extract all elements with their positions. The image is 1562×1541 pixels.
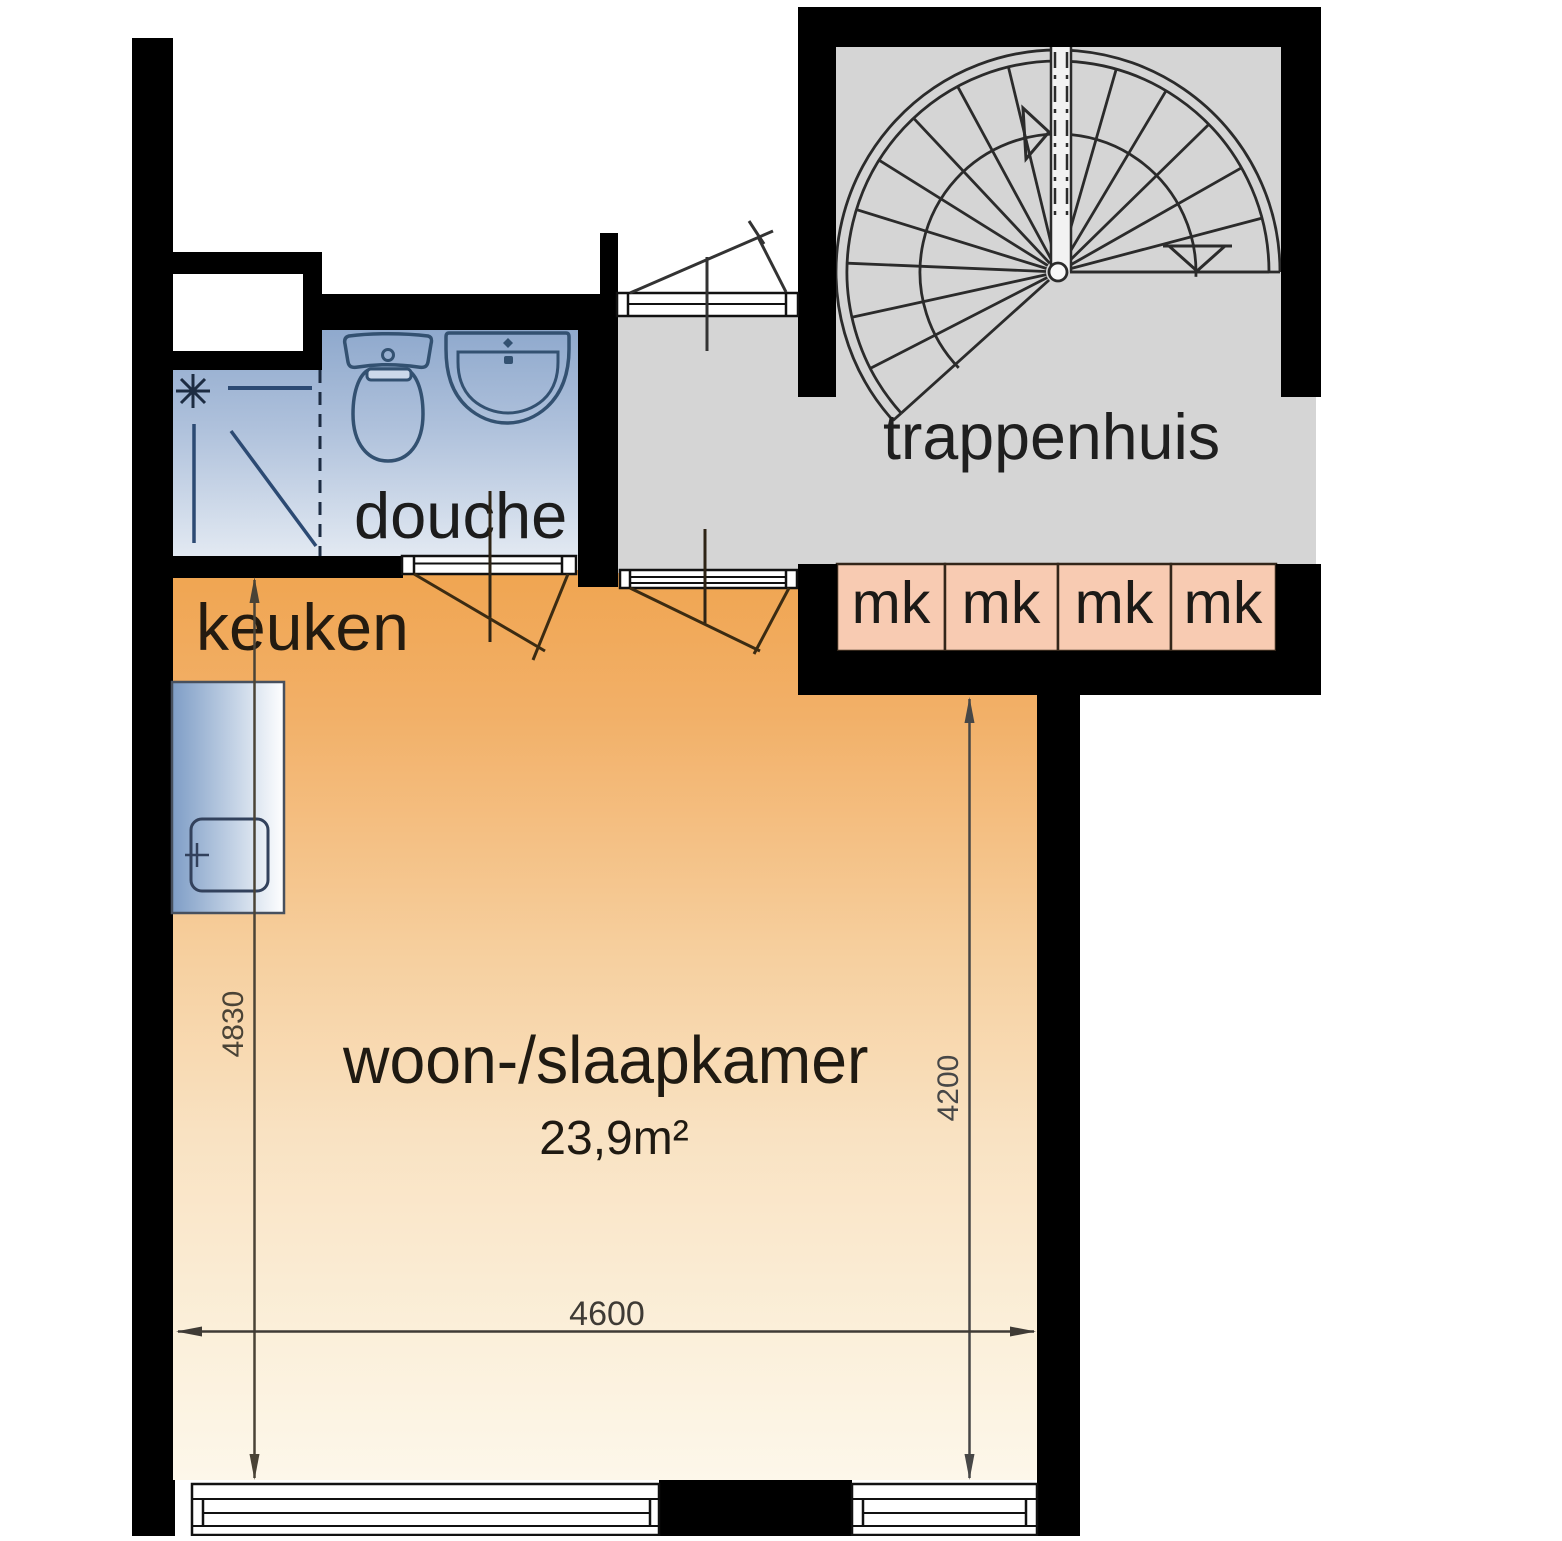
svg-text:mk: mk bbox=[962, 570, 1041, 636]
svg-text:4830: 4830 bbox=[217, 991, 250, 1058]
svg-text:douche: douche bbox=[354, 479, 567, 552]
svg-text:4200: 4200 bbox=[932, 1055, 965, 1122]
svg-text:mk: mk bbox=[1184, 570, 1263, 636]
svg-text:mk: mk bbox=[852, 570, 931, 636]
svg-text:23,9m²: 23,9m² bbox=[539, 1112, 688, 1165]
svg-text:keuken: keuken bbox=[196, 590, 409, 664]
svg-text:trappenhuis: trappenhuis bbox=[883, 401, 1220, 473]
svg-text:woon-/slaapkamer: woon-/slaapkamer bbox=[342, 1023, 868, 1097]
svg-text:4600: 4600 bbox=[569, 1295, 645, 1333]
svg-text:mk: mk bbox=[1075, 570, 1154, 636]
